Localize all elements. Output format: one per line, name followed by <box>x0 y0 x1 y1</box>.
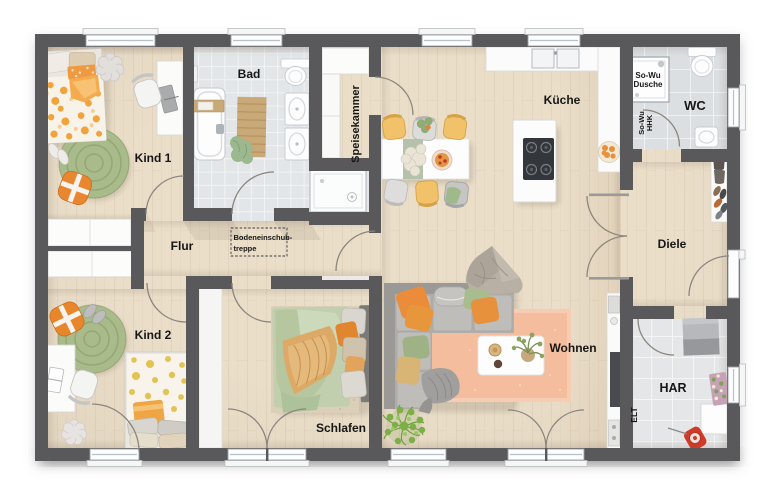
svg-text:Bad: Bad <box>238 67 261 81</box>
svg-text:Speisekammer: Speisekammer <box>350 84 362 162</box>
svg-text:Dusche: Dusche <box>634 80 663 89</box>
svg-text:ELT: ELT <box>629 406 639 422</box>
svg-text:Schlafen: Schlafen <box>316 421 366 435</box>
svg-text:HHK: HHK <box>645 114 654 131</box>
svg-text:Kind 1: Kind 1 <box>135 151 172 165</box>
svg-text:treppe: treppe <box>234 244 257 253</box>
svg-text:WC: WC <box>684 98 706 113</box>
svg-text:Flur: Flur <box>171 239 194 253</box>
svg-text:Diele: Diele <box>658 237 687 251</box>
svg-text:Küche: Küche <box>544 93 581 107</box>
svg-text:Bodeneinschub-: Bodeneinschub- <box>234 233 293 242</box>
svg-text:Kind 2: Kind 2 <box>135 328 172 342</box>
svg-text:Wohnen: Wohnen <box>549 341 596 355</box>
svg-text:HAR: HAR <box>659 381 686 395</box>
svg-text:So-Wu: So-Wu <box>635 71 660 80</box>
